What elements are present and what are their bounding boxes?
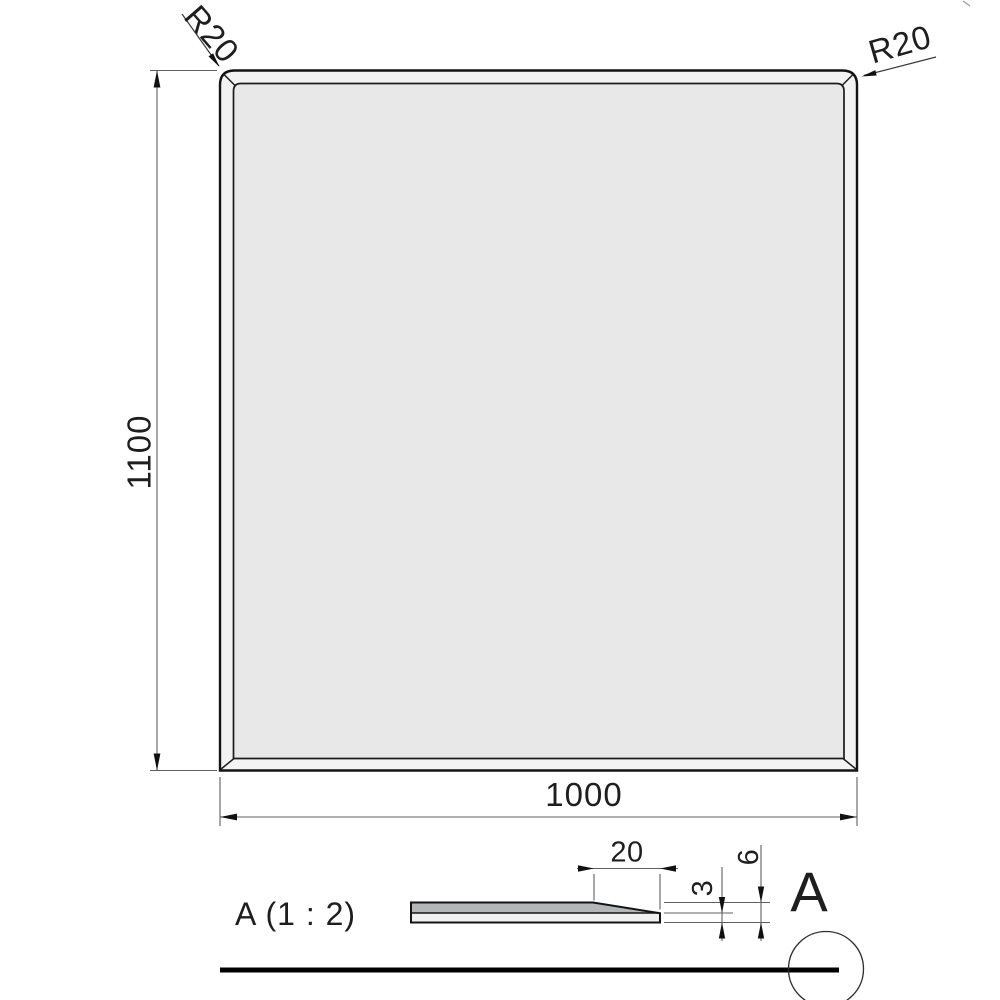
bevel-arrow-left [578, 865, 594, 871]
detail-view-label: A (1 : 2) [235, 896, 356, 932]
radius-callout-top-left: R20 [177, 0, 247, 70]
technical-drawing: 1100 1000 R20 R20 [0, 0, 1000, 1000]
radius-arrow-top-right [862, 70, 877, 76]
drawing-canvas: 1100 1000 R20 R20 [0, 0, 1000, 1000]
radius-value-top-left: R20 [177, 0, 247, 70]
thickness-arrow-top [758, 887, 764, 903]
panel-bevel-outline [234, 84, 845, 759]
width-arrow-right [840, 814, 857, 821]
edge-thickness-dimension: 3 [687, 867, 725, 941]
detail-callout-circle [789, 932, 864, 1000]
radius-value-top-right: R20 [864, 17, 935, 70]
main-view [220, 71, 857, 771]
height-dimension-value: 1100 [121, 415, 158, 490]
height-arrow-bottom [154, 754, 161, 771]
stray-mark [963, 1, 970, 6]
edge-thickness-value: 3 [687, 880, 719, 897]
radius-callout-top-right: R20 [862, 17, 937, 76]
width-dimension: 1000 [220, 776, 857, 826]
edge-arrow-bottom [719, 923, 725, 939]
detail-view: 20 3 6 A (1 : 2) [235, 837, 770, 942]
bevel-arrow-right [660, 865, 676, 871]
height-arrow-top [154, 71, 161, 88]
bevel-width-dimension: 20 [577, 837, 678, 910]
height-dimension: 1100 [121, 71, 218, 771]
detail-callout-letter: A [790, 860, 828, 923]
width-dimension-value: 1000 [545, 776, 622, 813]
width-arrow-left [220, 814, 237, 821]
thickness-dimension: 6 [733, 845, 765, 941]
edge-arrow-top [719, 897, 725, 913]
bevel-width-value: 20 [610, 837, 643, 869]
section-bottom-band [411, 913, 660, 923]
thickness-arrow-bottom [758, 923, 764, 939]
panel-thickness-value: 6 [733, 849, 765, 866]
